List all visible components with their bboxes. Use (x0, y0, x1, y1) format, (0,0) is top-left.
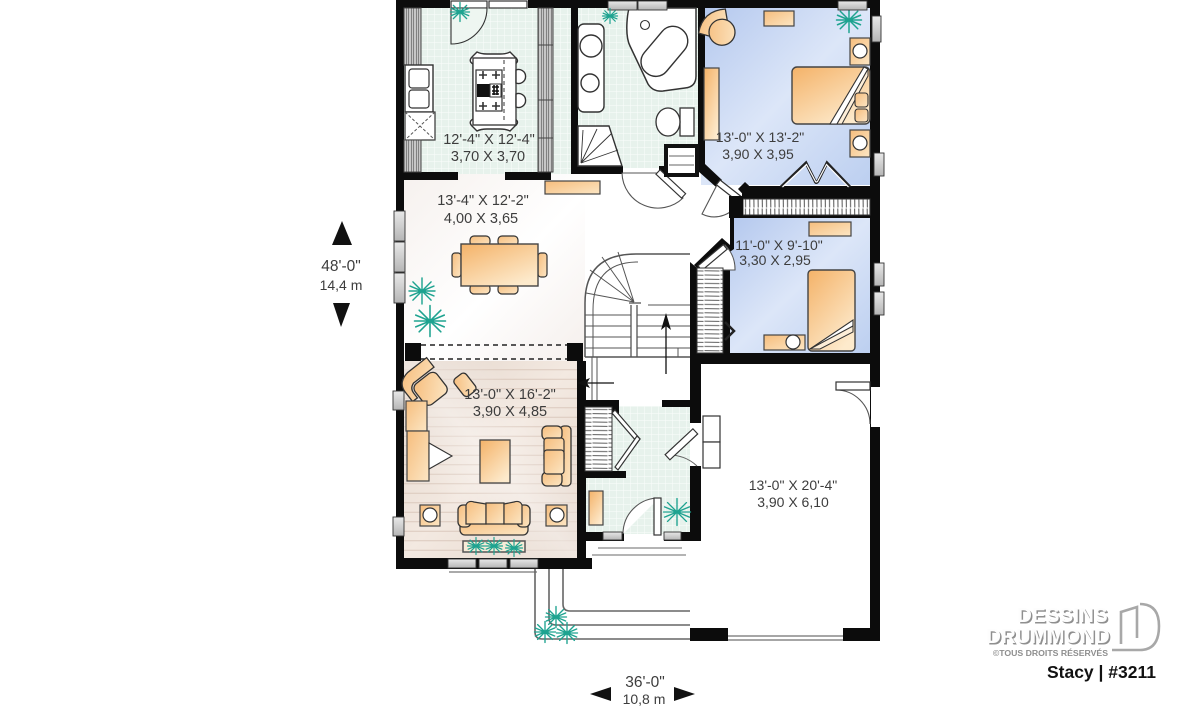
svg-text:13'-0" X 16'-2": 13'-0" X 16'-2" (464, 387, 556, 403)
svg-text:DESSINS: DESSINS (1017, 605, 1108, 627)
svg-text:48'-0": 48'-0" (321, 258, 360, 275)
svg-text:11'-0" X 9'-10": 11'-0" X 9'-10" (735, 237, 822, 253)
svg-text:13'-0" X 13'-2": 13'-0" X 13'-2" (716, 129, 804, 145)
svg-text:DRUMMOND: DRUMMOND (987, 626, 1111, 648)
svg-text:3,90 X 6,10: 3,90 X 6,10 (757, 494, 829, 510)
svg-text:10,8 m: 10,8 m (623, 691, 666, 707)
svg-text:13'-0" X 20'-4": 13'-0" X 20'-4" (749, 477, 837, 493)
svg-text:13'-4" X 12'-2": 13'-4" X 12'-2" (437, 193, 529, 209)
svg-text:3,90 X 3,95: 3,90 X 3,95 (722, 146, 794, 162)
svg-text:©TOUS DROITS RÉSERVÉS: ©TOUS DROITS RÉSERVÉS (993, 648, 1108, 658)
svg-text:36'-0": 36'-0" (625, 674, 664, 691)
svg-text:3,70 X 3,70: 3,70 X 3,70 (451, 149, 525, 165)
svg-text:12'-4" X 12'-4": 12'-4" X 12'-4" (443, 132, 535, 148)
svg-text:3,30 X 2,95: 3,30 X 2,95 (739, 252, 811, 268)
svg-text:14,4 m: 14,4 m (320, 277, 363, 293)
svg-text:3,90 X 4,85: 3,90 X 4,85 (473, 404, 547, 420)
svg-text:4,00 X 3,65: 4,00 X 3,65 (444, 211, 518, 227)
svg-text:Stacy | #3211: Stacy | #3211 (1047, 662, 1156, 682)
